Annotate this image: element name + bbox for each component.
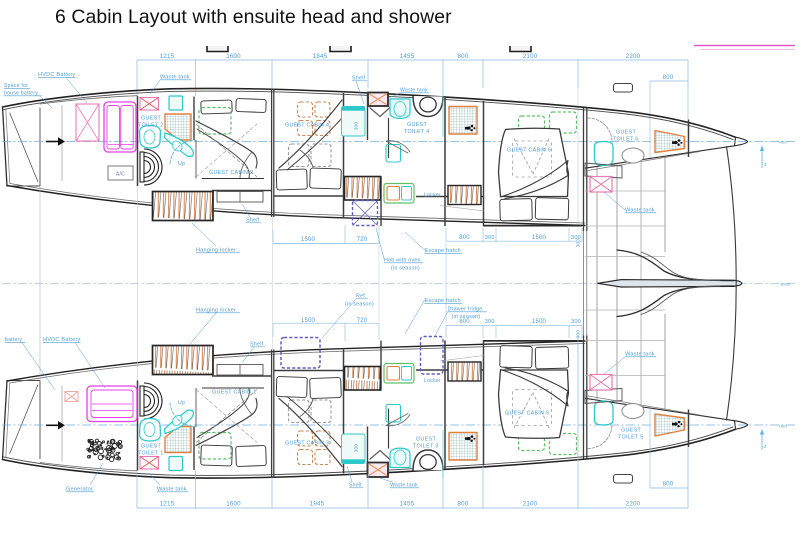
svg-text:GUEST: GUEST: [141, 116, 161, 122]
svg-text:1455: 1455: [400, 53, 415, 60]
svg-text:GUEST: GUEST: [416, 437, 436, 443]
svg-text:Up: Up: [178, 161, 185, 167]
svg-text:1500: 1500: [532, 319, 547, 325]
svg-text:1455: 1455: [400, 501, 415, 508]
svg-text:1500: 1500: [301, 318, 316, 324]
svg-text:1845: 1845: [313, 53, 328, 60]
svg-text:1600: 1600: [226, 53, 241, 60]
svg-text:GUEST CABIN 4: GUEST CABIN 4: [285, 123, 329, 129]
svg-text:720: 720: [357, 318, 368, 324]
svg-text:2200: 2200: [626, 53, 641, 60]
svg-text:Up: Up: [178, 400, 185, 406]
svg-text:800: 800: [459, 235, 470, 241]
svg-text:2200: 2200: [626, 501, 641, 508]
svg-text:300: 300: [354, 122, 360, 131]
svg-text:TOILET 2: TOILET 2: [138, 123, 164, 129]
svg-text:GUEST: GUEST: [616, 130, 636, 136]
svg-text:GUEST CABIN 3: GUEST CABIN 3: [285, 441, 329, 447]
svg-text:800: 800: [663, 482, 674, 488]
svg-text:GUEST CABIN 1: GUEST CABIN 1: [212, 390, 256, 396]
svg-text:GUEST CABIN 5: GUEST CABIN 5: [505, 411, 549, 417]
svg-text:300: 300: [571, 319, 581, 325]
svg-text:720: 720: [357, 237, 368, 243]
svg-text:GUEST CABIN 2: GUEST CABIN 2: [209, 170, 253, 176]
svg-text:Locker: Locker: [424, 193, 441, 199]
svg-text:TOILET 3: TOILET 3: [413, 444, 439, 450]
svg-text:Z: Z: [764, 444, 767, 449]
svg-text:A/C: A/C: [116, 172, 125, 178]
svg-text:(in season): (in season): [391, 266, 420, 272]
svg-text:2100: 2100: [523, 53, 538, 60]
svg-text:1500: 1500: [301, 237, 316, 243]
svg-text:300: 300: [354, 444, 360, 453]
svg-text:GUEST: GUEST: [407, 122, 427, 128]
svg-text:300: 300: [485, 319, 495, 325]
svg-text:TOILET 4: TOILET 4: [404, 129, 430, 135]
svg-text:Boat: Boat: [781, 282, 791, 287]
svg-text:1600: 1600: [226, 501, 241, 508]
svg-text:300: 300: [576, 330, 582, 339]
svg-text:800: 800: [458, 501, 469, 508]
svg-text:TOILET 1: TOILET 1: [138, 451, 164, 457]
svg-text:300: 300: [571, 235, 581, 241]
svg-text:GUEST: GUEST: [141, 444, 161, 450]
svg-text:1500: 1500: [532, 235, 547, 241]
svg-text:Z: Z: [764, 162, 767, 167]
svg-text:2100: 2100: [523, 501, 538, 508]
svg-text:1945: 1945: [310, 501, 325, 508]
svg-text:Hull: Hull: [779, 140, 787, 145]
svg-text:TOILET 6: TOILET 6: [613, 137, 639, 143]
svg-text:TOILET 5: TOILET 5: [618, 435, 644, 441]
svg-text:GUEST CABIN 6: GUEST CABIN 6: [507, 148, 551, 154]
svg-text:1215: 1215: [160, 501, 175, 508]
svg-text:6 Cabin Layout with ensuite he: 6 Cabin Layout with ensuite head and sho…: [55, 6, 452, 28]
svg-text:800: 800: [459, 319, 470, 325]
svg-text:Locker: Locker: [424, 378, 441, 384]
svg-text:800: 800: [663, 75, 674, 81]
svg-text:800: 800: [458, 53, 469, 60]
svg-text:GUEST: GUEST: [621, 428, 641, 434]
svg-text:1215: 1215: [160, 53, 175, 60]
svg-text:Hull: Hull: [779, 424, 787, 429]
svg-text:300: 300: [485, 235, 495, 241]
